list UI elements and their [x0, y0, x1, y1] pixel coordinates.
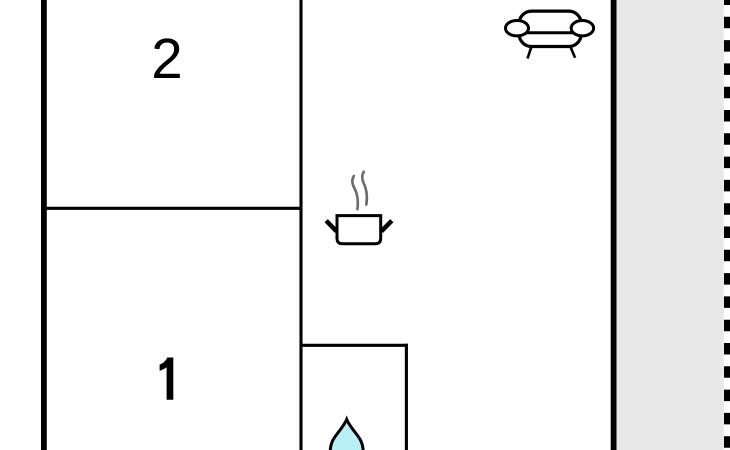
svg-text:2: 2	[151, 27, 182, 90]
